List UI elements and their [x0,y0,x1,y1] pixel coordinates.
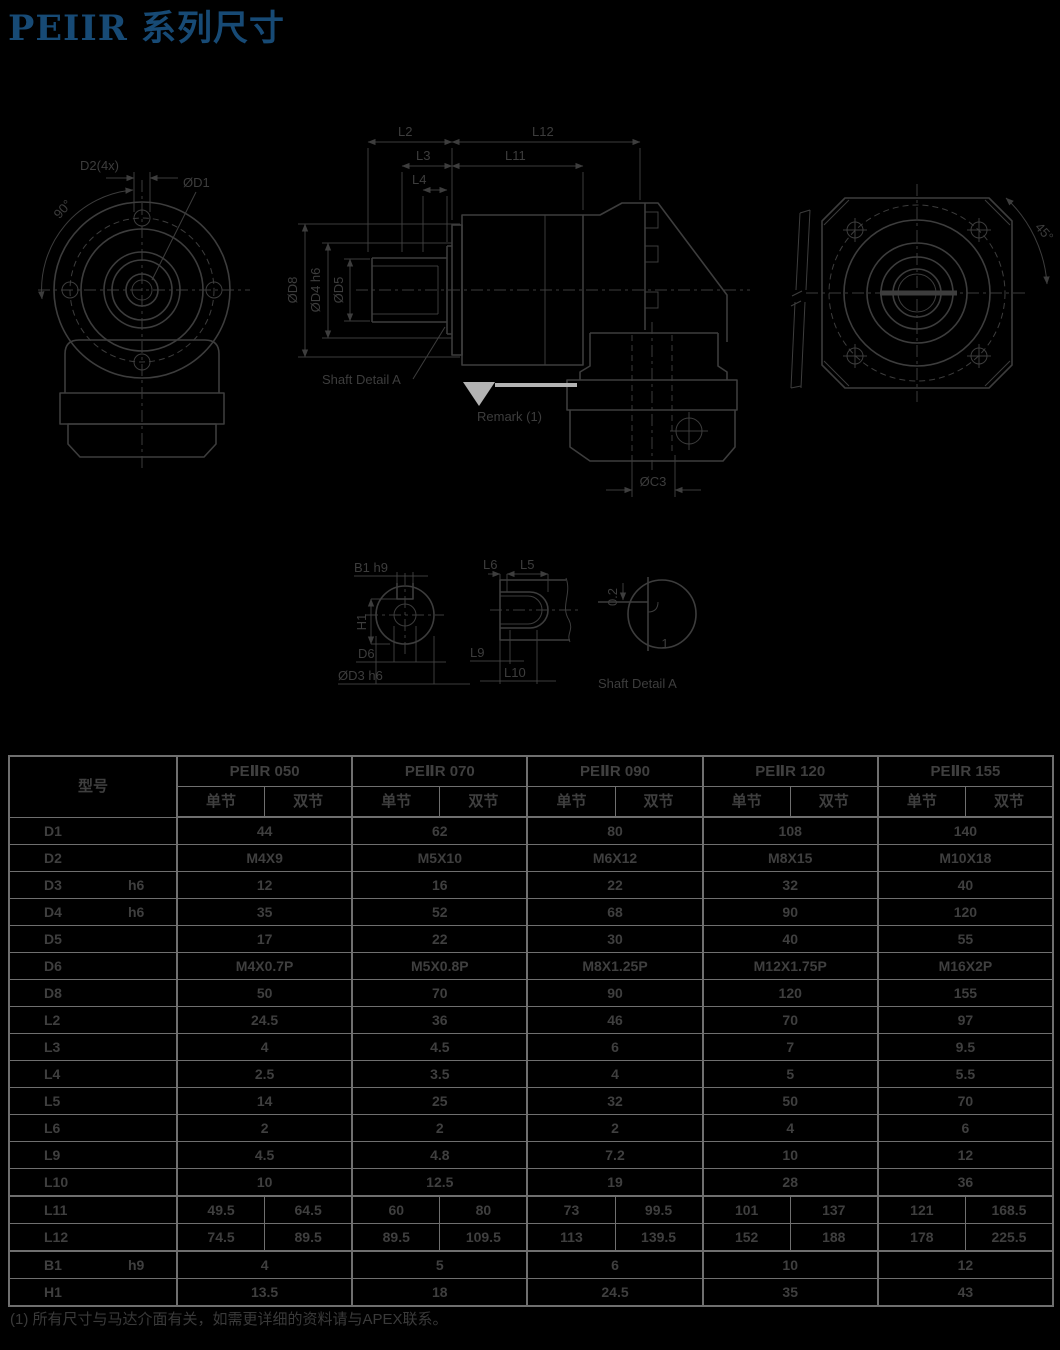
dimension-value: 44 [177,817,352,845]
dimension-value: M5X10 [352,845,527,872]
dimension-value: 28 [703,1169,878,1197]
table-row: D3h61216223240 [9,872,1053,899]
dim-label-d1: ØD1 [183,175,210,190]
dimension-value: 52 [352,899,527,926]
dimension-value: 7.2 [527,1142,702,1169]
dim-label-d5: ØD5 [331,277,346,304]
dim-label-l2: L2 [398,124,412,139]
table-row: D51722304055 [9,926,1053,953]
dimension-value: 17 [177,926,352,953]
row-label-text: D6 [44,953,62,979]
row-label-text: L5 [44,1088,60,1114]
dim-label-d2: D2(4x) [80,158,119,173]
dimension-value: 89.5 [265,1224,353,1252]
dimension-value: 5.5 [878,1061,1053,1088]
dimension-value: M16X2P [878,953,1053,980]
dimension-value: 46 [527,1007,702,1034]
row-label-text: D1 [44,818,62,844]
dimension-value: 108 [703,817,878,845]
dimension-value: 50 [703,1088,878,1115]
table-body: D1446280108140D2M4X9M5X10M6X12M8X15M10X1… [9,817,1053,1306]
dimension-value: 36 [352,1007,527,1034]
dim-label-d3: ØD3 h6 [338,668,383,683]
dim-label-l11: L11 [505,148,526,163]
table-head: 型号PEⅡR 050PEⅡR 070PEⅡR 090PEⅡR 120PEⅡR 1… [9,756,1053,817]
dimension-value: 140 [878,817,1053,845]
table-row: D8507090120155 [9,980,1053,1007]
dimension-value: M10X18 [878,845,1053,872]
dimension-value: M6X12 [527,845,702,872]
table-row: L101012.5192836 [9,1169,1053,1197]
dimension-value: 12 [878,1251,1053,1279]
dimension-value: 155 [878,980,1053,1007]
footnote: (1) 所有尺寸与马达介面有关，如需更详细的资料请与APEX联系。 [10,1308,448,1329]
dim-label-c3: ØC3 [640,474,667,489]
dimension-value: 5 [352,1251,527,1279]
side-view-drawing: L2 L12 L3 L11 L4 ØD8 ØD4 h6 ØD5 [285,124,750,497]
dimension-value: 9.5 [878,1034,1053,1061]
table-row: L1274.589.589.5109.5113139.5152188178225… [9,1224,1053,1252]
dim-label-1: 1 [661,636,668,651]
column-header-series: PEⅡR 070 [352,756,527,787]
row-label-text: B1 [44,1252,62,1278]
dim-label-l9: L9 [470,645,484,660]
dimension-value: 80 [440,1196,528,1224]
column-subheader: 单节 [177,787,265,818]
dimension-value: 109.5 [440,1224,528,1252]
dimension-value: 113 [527,1224,615,1252]
row-label: D4h6 [9,899,177,926]
dimension-value: 16 [352,872,527,899]
shaft-detail-a-drawing: 0.2 1 Shaft Detail A [598,577,696,691]
dimension-value: 74.5 [177,1224,265,1252]
dimension-value: M8X1.25P [527,953,702,980]
table-row: H113.51824.53543 [9,1279,1053,1307]
dimension-value: 90 [527,980,702,1007]
row-label: H1 [9,1279,177,1307]
dimension-value: 2 [352,1115,527,1142]
dimension-value: 40 [878,872,1053,899]
row-label: D5 [9,926,177,953]
dimension-value: M12X1.75P [703,953,878,980]
dimension-value: 2.5 [177,1061,352,1088]
dimension-value: 73 [527,1196,615,1224]
front-view-drawing: D2(4x) ØD1 90° [38,158,250,472]
shaft-detail-caption: Shaft Detail A [598,676,677,691]
dimension-value: 35 [177,899,352,926]
row-label-text: L2 [44,1007,60,1033]
dimension-value: 3.5 [352,1061,527,1088]
table-row: D6M4X0.7PM5X0.8PM8X1.25PM12X1.75PM16X2P [9,953,1053,980]
dim-label-b1: B1 h9 [354,560,388,575]
column-header-series: PEⅡR 120 [703,756,878,787]
dimension-value: 139.5 [615,1224,703,1252]
table-row: L622246 [9,1115,1053,1142]
row-label: D2 [9,845,177,872]
dimension-value: M4X9 [177,845,352,872]
dimension-value: 13.5 [177,1279,352,1307]
column-subheader: 单节 [703,787,791,818]
dimension-value: 89.5 [352,1224,440,1252]
row-label: L6 [9,1115,177,1142]
dimension-value: 225.5 [965,1224,1053,1252]
dim-label-d6: D6 [358,646,375,661]
dimension-value: 24.5 [527,1279,702,1307]
rear-view-drawing: 45° [791,184,1056,402]
column-subheader: 双节 [790,787,878,818]
dim-label-l4: L4 [412,172,426,187]
dimension-value: 120 [703,980,878,1007]
dimension-value: 4.5 [352,1034,527,1061]
dimension-value: 35 [703,1279,878,1307]
dim-label-l5: L5 [520,557,534,572]
dimension-value: 4.5 [177,1142,352,1169]
dimension-value: 14 [177,1088,352,1115]
row-label-text: L6 [44,1115,60,1141]
dimension-value: M8X15 [703,845,878,872]
dimension-value: 10 [703,1251,878,1279]
dimension-value: 10 [177,1169,352,1197]
dimension-value: 121 [878,1196,966,1224]
dimension-value: 24.5 [177,1007,352,1034]
column-subheader: 单节 [878,787,966,818]
row-label: L9 [9,1142,177,1169]
shaft-detail-callout: Shaft Detail A [322,372,401,387]
table-row: L344.5679.5 [9,1034,1053,1061]
dim-label-d4: ØD4 h6 [308,268,323,313]
dimension-value: 80 [527,817,702,845]
dimension-value: 120 [878,899,1053,926]
remark-label: Remark (1) [477,409,542,424]
dimension-value: 68 [527,899,702,926]
column-subheader: 单节 [352,787,440,818]
row-label-text: L12 [44,1224,68,1250]
row-label-text: L9 [44,1142,60,1168]
dimension-value: 97 [878,1007,1053,1034]
dimension-table: 型号PEⅡR 050PEⅡR 070PEⅡR 090PEⅡR 120PEⅡR 1… [8,755,1054,1307]
dimension-value: 62 [352,817,527,845]
table-row: B1h94561012 [9,1251,1053,1279]
dimension-value: 168.5 [965,1196,1053,1224]
dimension-value: 2 [527,1115,702,1142]
column-subheader: 单节 [527,787,615,818]
row-label: L12 [9,1224,177,1252]
dimension-value: 178 [878,1224,966,1252]
row-label-text: H1 [44,1279,62,1305]
row-label: D3h6 [9,872,177,899]
dim-label-h1: H1 [354,614,369,631]
column-header-model: 型号 [9,756,177,817]
table-row: L224.536467097 [9,1007,1053,1034]
page: PEIIR 系列尺寸 D2(4x) [0,0,1060,1350]
row-label: L5 [9,1088,177,1115]
table-row: D2M4X9M5X10M6X12M8X15M10X18 [9,845,1053,872]
row-label: B1h9 [9,1251,177,1279]
column-subheader: 双节 [615,787,703,818]
dimension-value: 101 [703,1196,791,1224]
dimension-value: 12.5 [352,1169,527,1197]
key-side-drawing: L6 L5 L9 L10 [470,557,580,684]
row-tolerance-text: h9 [128,1252,144,1278]
dim-label-d8: ØD8 [285,277,300,304]
dimension-value: 25 [352,1088,527,1115]
dimension-value: 4 [177,1251,352,1279]
row-label: L4 [9,1061,177,1088]
table-row: L94.54.87.21012 [9,1142,1053,1169]
dimension-value: 2 [177,1115,352,1142]
dimension-value: 70 [352,980,527,1007]
dimension-value: 18 [352,1279,527,1307]
dimension-value: 36 [878,1169,1053,1197]
dimension-value: M4X0.7P [177,953,352,980]
dimension-value: 70 [703,1007,878,1034]
dim-label-l12: L12 [532,124,554,139]
dimension-value: M5X0.8P [352,953,527,980]
dimension-value: 152 [703,1224,791,1252]
row-label-text: D4 [44,899,62,925]
row-label: L10 [9,1169,177,1197]
dimension-value: 90 [703,899,878,926]
dimension-value: 64.5 [265,1196,353,1224]
dimension-value: 4.8 [352,1142,527,1169]
row-label-text: L3 [44,1034,60,1060]
dimension-value: 6 [527,1251,702,1279]
dimension-value: 22 [527,872,702,899]
row-label: D1 [9,817,177,845]
dimension-value: 30 [527,926,702,953]
dimension-value: 4 [177,1034,352,1061]
column-header-series: PEⅡR 090 [527,756,702,787]
dimension-value: 5 [703,1061,878,1088]
dimension-value: 50 [177,980,352,1007]
dimension-value: 22 [352,926,527,953]
row-label: L11 [9,1196,177,1224]
dim-label-02: 0.2 [605,588,620,606]
row-label: L2 [9,1007,177,1034]
dimension-value: 188 [790,1224,878,1252]
row-label: D8 [9,980,177,1007]
dimension-value: 7 [703,1034,878,1061]
row-label: D6 [9,953,177,980]
dimension-value: 6 [527,1034,702,1061]
dimension-value: 60 [352,1196,440,1224]
key-section-drawing: B1 h9 H1 D6 ØD3 h6 [338,560,470,684]
table-row: D4h635526890120 [9,899,1053,926]
dimension-value: 99.5 [615,1196,703,1224]
dimension-value: 137 [790,1196,878,1224]
row-label-text: D3 [44,872,62,898]
table-row: L42.53.5455.5 [9,1061,1053,1088]
dim-label-l3: L3 [416,148,430,163]
dimension-value: 43 [878,1279,1053,1307]
table-row: D1446280108140 [9,817,1053,845]
row-label-text: D8 [44,980,62,1006]
dimension-value: 4 [703,1115,878,1142]
dim-label-l6: L6 [483,557,497,572]
row-label-text: L4 [44,1061,60,1087]
table-row: L1149.564.560807399.5101137121168.5 [9,1196,1053,1224]
row-tolerance-text: h6 [128,872,144,898]
row-label-text: L10 [44,1169,68,1195]
dimension-value: 32 [527,1088,702,1115]
column-header-series: PEⅡR 155 [878,756,1053,787]
column-header-series: PEⅡR 050 [177,756,352,787]
dim-label-90deg: 90° [51,197,75,222]
dimension-value: 10 [703,1142,878,1169]
dimension-value: 32 [703,872,878,899]
column-subheader: 双节 [265,787,353,818]
dimension-value: 12 [177,872,352,899]
row-label-text: D2 [44,845,62,871]
table-row: L51425325070 [9,1088,1053,1115]
dimension-value: 19 [527,1169,702,1197]
dimension-value: 6 [878,1115,1053,1142]
column-subheader: 双节 [440,787,528,818]
dimension-value: 55 [878,926,1053,953]
dim-label-l10: L10 [504,665,526,680]
dimension-value: 49.5 [177,1196,265,1224]
dimension-value: 40 [703,926,878,953]
technical-drawings: D2(4x) ØD1 90° L2 L12 L3 L11 L4 [0,0,1060,740]
row-label: L3 [9,1034,177,1061]
dimension-value: 70 [878,1088,1053,1115]
row-tolerance-text: h6 [128,899,144,925]
dimension-value: 12 [878,1142,1053,1169]
column-subheader: 双节 [965,787,1053,818]
row-label-text: D5 [44,926,62,952]
row-label-text: L11 [44,1197,67,1223]
dimension-value: 4 [527,1061,702,1088]
remark-pointer-icon [463,382,495,406]
